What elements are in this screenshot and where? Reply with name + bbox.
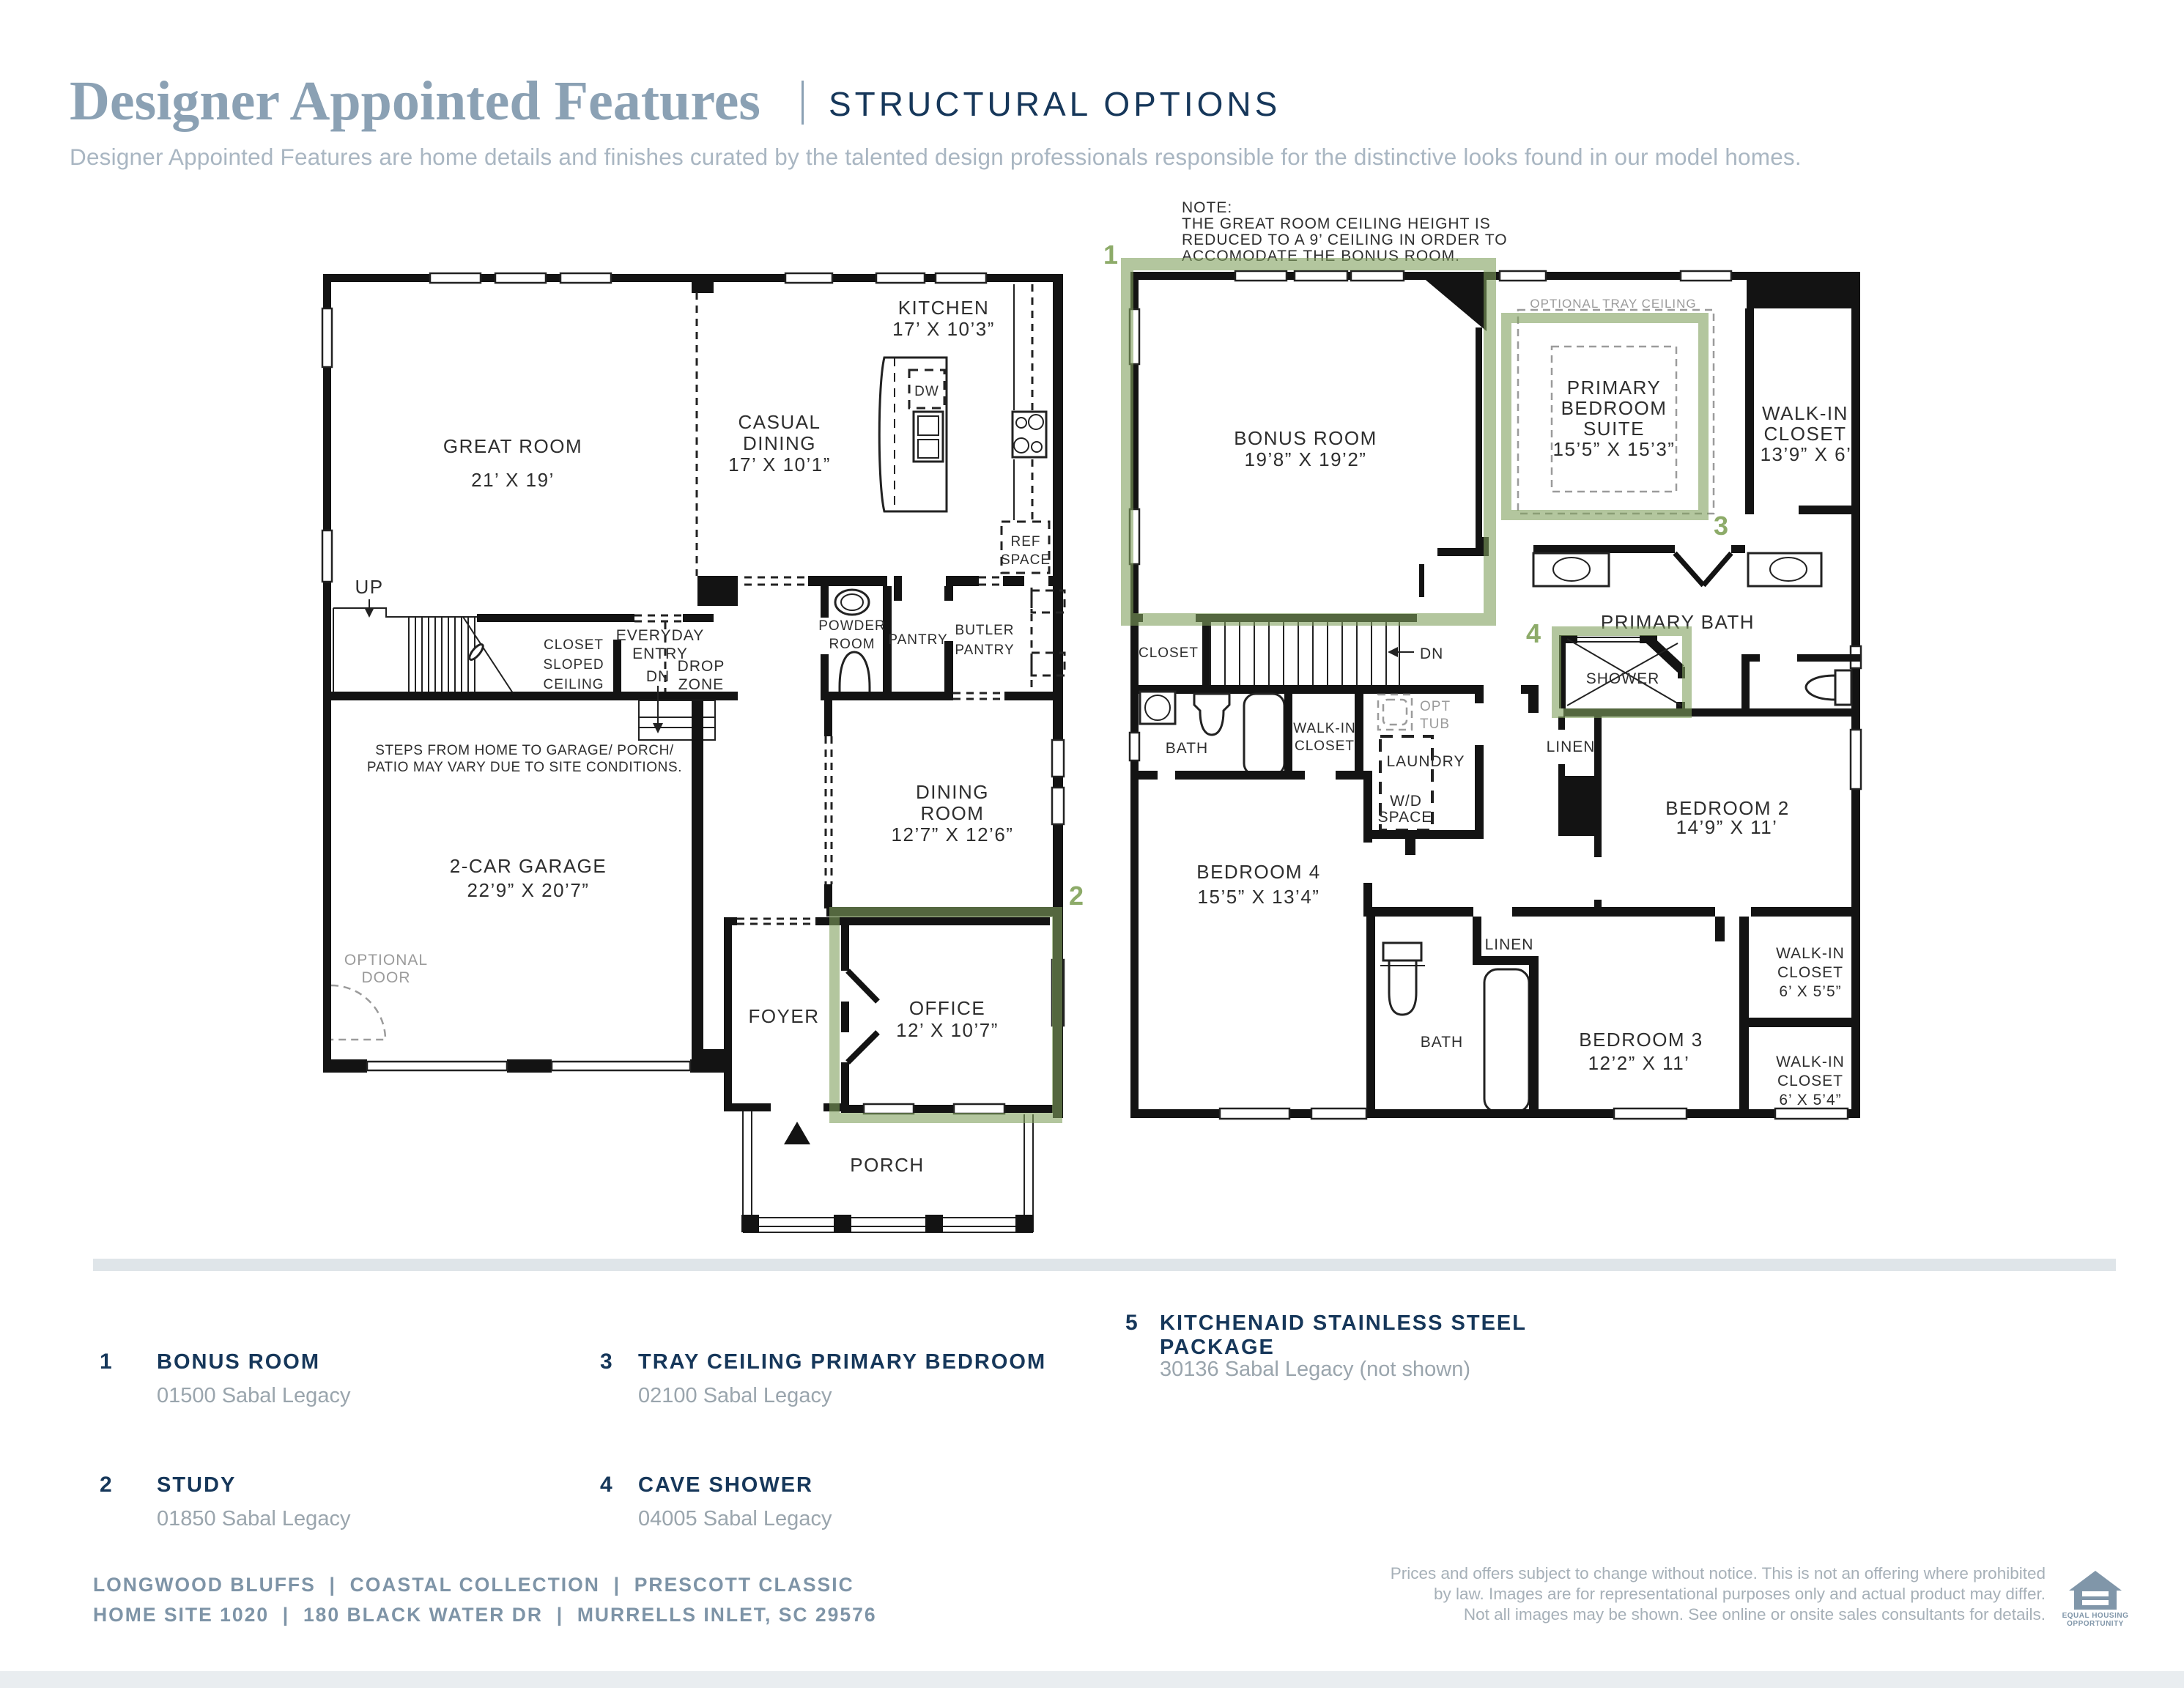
svg-text:LAUNDRY: LAUNDRY: [1387, 753, 1465, 770]
svg-text:17’ X 10’1”: 17’ X 10’1”: [728, 454, 831, 475]
svg-text:BONUS ROOM: BONUS ROOM: [157, 1350, 320, 1374]
svg-text:TUB: TUB: [1420, 717, 1450, 732]
svg-text:01850 Sabal Legacy: 01850 Sabal Legacy: [157, 1507, 351, 1530]
svg-text:LINEN: LINEN: [1485, 936, 1534, 953]
svg-text:LINEN: LINEN: [1547, 738, 1596, 755]
svg-text:SPACE: SPACE: [1378, 809, 1433, 826]
svg-text:21’ X 19’: 21’ X 19’: [471, 469, 555, 491]
svg-text:PRIMARY: PRIMARY: [1567, 377, 1662, 399]
svg-text:6’ X 5’4”: 6’ X 5’4”: [1779, 1092, 1841, 1108]
svg-text:4: 4: [600, 1473, 614, 1497]
svg-text:DOOR: DOOR: [362, 969, 411, 986]
svg-text:CLOSET: CLOSET: [1777, 964, 1843, 981]
svg-text:STEPS FROM HOME TO GARAGE/ POR: STEPS FROM HOME TO GARAGE/ PORCH/: [375, 743, 674, 758]
svg-text:EVERYDAY: EVERYDAY: [616, 627, 704, 644]
svg-text:5: 5: [1125, 1311, 1139, 1335]
svg-text:1: 1: [1103, 240, 1118, 270]
svg-text:PORCH: PORCH: [850, 1154, 924, 1176]
svg-text:CLOSET: CLOSET: [1295, 738, 1355, 754]
svg-text:STUDY: STUDY: [157, 1473, 236, 1497]
svg-text:OFFICE: OFFICE: [909, 997, 985, 1019]
svg-text:BEDROOM: BEDROOM: [1561, 397, 1667, 419]
svg-text:ROOM: ROOM: [829, 637, 875, 652]
svg-text:13’9” X 6’: 13’9” X 6’: [1761, 443, 1852, 465]
svg-text:DN: DN: [1420, 645, 1443, 662]
svg-text:by law. Images are for represe: by law. Images are for representational …: [1434, 1585, 2046, 1603]
svg-text:BATH: BATH: [1421, 1034, 1463, 1051]
svg-text:Designer Appointed Features: Designer Appointed Features: [70, 70, 760, 132]
svg-text:CLOSET: CLOSET: [544, 637, 604, 653]
svg-text:GREAT ROOM: GREAT ROOM: [443, 435, 582, 457]
svg-text:UP: UP: [355, 576, 383, 598]
svg-text:BONUS ROOM: BONUS ROOM: [1234, 427, 1377, 449]
svg-text:FOYER: FOYER: [748, 1005, 819, 1027]
svg-text:TRAY CEILING PRIMARY BEDROOM: TRAY CEILING PRIMARY BEDROOM: [638, 1350, 1046, 1374]
svg-text:DINING: DINING: [743, 432, 816, 454]
svg-text:Not all images may be shown. S: Not all images may be shown. See online …: [1464, 1605, 2046, 1624]
svg-text:POWDER: POWDER: [818, 618, 886, 634]
svg-text:2-CAR GARAGE: 2-CAR GARAGE: [450, 855, 607, 877]
svg-text:12’7” X 12’6”: 12’7” X 12’6”: [892, 823, 1014, 845]
svg-text:PACKAGE: PACKAGE: [1160, 1336, 1275, 1359]
svg-text:SPACE: SPACE: [1001, 552, 1051, 568]
svg-text:CLOSET: CLOSET: [1763, 423, 1846, 445]
svg-text:3: 3: [600, 1350, 614, 1374]
svg-text:ROOM: ROOM: [921, 802, 985, 824]
svg-text:12’2” X 11’: 12’2” X 11’: [1588, 1052, 1690, 1074]
svg-text:BUTLER: BUTLER: [955, 623, 1015, 638]
svg-text:KITCHEN: KITCHEN: [898, 297, 990, 319]
svg-text:CASUAL: CASUAL: [738, 411, 821, 433]
svg-text:15’5” X 13’4”: 15’5” X 13’4”: [1198, 886, 1320, 908]
svg-text:OPPORTUNITY: OPPORTUNITY: [2067, 1620, 2124, 1628]
svg-text:CEILING: CEILING: [543, 677, 604, 692]
svg-text:HOME SITE 1020 | 180 BLACK W: HOME SITE 1020 | 180 BLACK WATER DR | MU…: [93, 1604, 877, 1626]
svg-text:2: 2: [100, 1473, 114, 1497]
svg-text:22’9” X 20’7”: 22’9” X 20’7”: [467, 879, 590, 901]
svg-text:STRUCTURAL OPTIONS: STRUCTURAL OPTIONS: [829, 85, 1281, 123]
svg-text:15’5” X 15’3”: 15’5” X 15’3”: [1553, 438, 1676, 460]
svg-text:OPT: OPT: [1420, 699, 1451, 714]
svg-text:19’8” X 19’2”: 19’8” X 19’2”: [1245, 448, 1367, 470]
svg-text:KITCHENAID STAINLESS STEEL: KITCHENAID STAINLESS STEEL: [1160, 1311, 1527, 1335]
svg-text:DW: DW: [914, 384, 939, 399]
svg-text:3: 3: [1714, 511, 1728, 541]
svg-text:2: 2: [1069, 881, 1084, 911]
svg-text:NOTE:: NOTE:: [1182, 199, 1232, 216]
svg-text:PATIO MAY VARY DUE TO SITE CON: PATIO MAY VARY DUE TO SITE CONDITIONS.: [367, 760, 682, 775]
svg-text:LONGWOOD BLUFFS | COASTAL CO: LONGWOOD BLUFFS | COASTAL COLLECTION | P…: [93, 1574, 854, 1596]
svg-text:CAVE SHOWER: CAVE SHOWER: [638, 1473, 813, 1497]
svg-text:01500 Sabal Legacy: 01500 Sabal Legacy: [157, 1384, 351, 1407]
svg-text:DN: DN: [646, 668, 670, 685]
svg-text:WALK-IN: WALK-IN: [1776, 945, 1845, 962]
svg-text:WALK-IN: WALK-IN: [1776, 1054, 1845, 1070]
svg-text:17’ X 10’3”: 17’ X 10’3”: [892, 318, 995, 340]
svg-text:DROP: DROP: [678, 658, 725, 675]
svg-text:OPTIONAL TRAY CEILING: OPTIONAL TRAY CEILING: [1530, 297, 1696, 311]
svg-text:BEDROOM 3: BEDROOM 3: [1579, 1029, 1703, 1051]
svg-text:12’ X 10’7”: 12’ X 10’7”: [896, 1019, 999, 1041]
svg-text:14’9” X 11’: 14’9” X 11’: [1676, 816, 1778, 838]
svg-text:SLOPED: SLOPED: [543, 657, 604, 673]
svg-text:BATH: BATH: [1166, 740, 1208, 757]
svg-text:1: 1: [100, 1350, 114, 1374]
svg-text:CLOSET: CLOSET: [1777, 1073, 1843, 1089]
svg-text:WALK-IN: WALK-IN: [1293, 721, 1355, 736]
svg-text:REDUCED TO A 9’ CEILING IN ORD: REDUCED TO A 9’ CEILING IN ORDER TO: [1182, 232, 1508, 248]
svg-text:SHOWER: SHOWER: [1586, 670, 1660, 687]
svg-text:OPTIONAL: OPTIONAL: [344, 952, 428, 969]
svg-text:SUITE: SUITE: [1583, 418, 1645, 440]
svg-text:6’ X 5’5”: 6’ X 5’5”: [1779, 983, 1841, 1000]
svg-text:PANTRY: PANTRY: [955, 643, 1014, 658]
svg-text:30136 Sabal Legacy (not shown): 30136 Sabal Legacy (not shown): [1160, 1358, 1470, 1381]
svg-text:WALK-IN: WALK-IN: [1762, 402, 1848, 424]
svg-text:ZONE: ZONE: [678, 676, 724, 693]
svg-text:THE GREAT ROOM CEILING HEIGHT: THE GREAT ROOM CEILING HEIGHT IS: [1182, 215, 1491, 232]
svg-text:W/D: W/D: [1390, 793, 1422, 810]
svg-text:REF: REF: [1011, 534, 1041, 549]
svg-text:04005 Sabal Legacy: 04005 Sabal Legacy: [638, 1507, 832, 1530]
svg-text:02100 Sabal Legacy: 02100 Sabal Legacy: [638, 1384, 832, 1407]
svg-text:4: 4: [1526, 618, 1541, 648]
svg-text:Prices and offers subject to c: Prices and offers subject to change with…: [1391, 1564, 2046, 1582]
svg-text:CLOSET: CLOSET: [1139, 645, 1199, 661]
svg-text:PANTRY: PANTRY: [888, 632, 947, 648]
svg-text:EQUAL HOUSING: EQUAL HOUSING: [2062, 1612, 2129, 1620]
svg-text:Designer Appointed Features ar: Designer Appointed Features are home det…: [70, 144, 1802, 170]
svg-text:BEDROOM 4: BEDROOM 4: [1196, 861, 1321, 883]
svg-text:DINING: DINING: [916, 781, 989, 803]
